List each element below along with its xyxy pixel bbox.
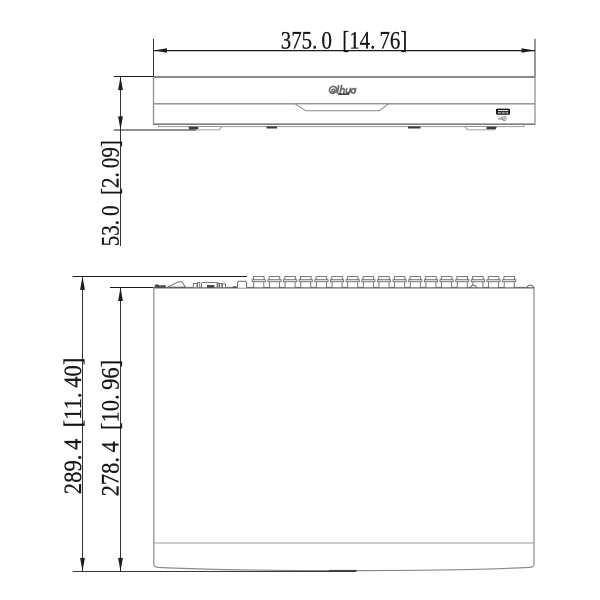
svg-text:375. 0 [14. 76]: 375. 0 [14. 76] xyxy=(281,28,408,55)
svg-text:53. 0 [2. 09]: 53. 0 [2. 09] xyxy=(97,140,124,246)
svg-text:278. 4 [10. 96]: 278. 4 [10. 96] xyxy=(98,360,125,497)
svg-text:289. 4 [11. 40]: 289. 4 [11. 40] xyxy=(60,358,87,495)
